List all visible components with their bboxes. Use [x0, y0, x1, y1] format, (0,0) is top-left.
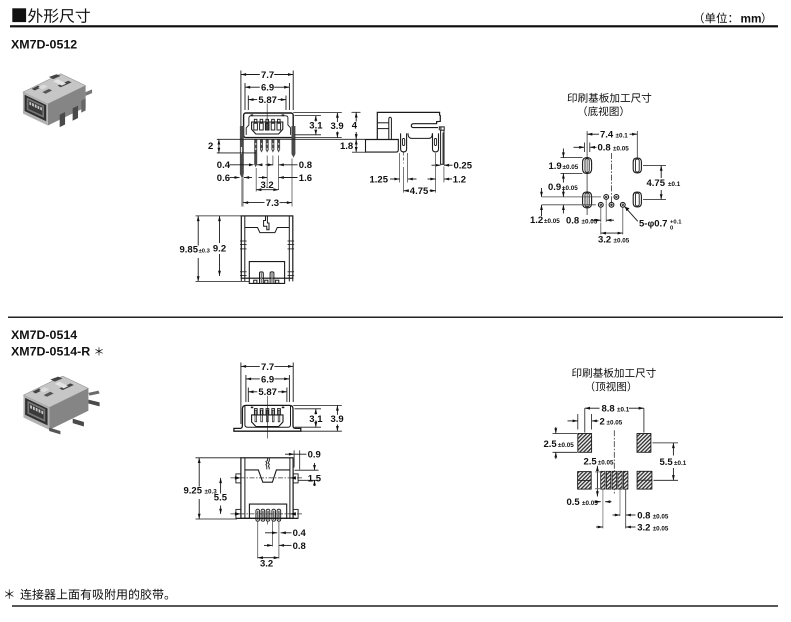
- svg-text:2: 2: [208, 141, 213, 152]
- svg-text:±0.05: ±0.05: [598, 460, 614, 467]
- svg-text:±0.05: ±0.05: [614, 238, 630, 245]
- svg-text:±0.1: ±0.1: [617, 407, 630, 414]
- svg-text:±0.3: ±0.3: [199, 249, 211, 255]
- svg-text:7.7: 7.7: [261, 362, 274, 373]
- svg-text:8.8: 8.8: [602, 404, 615, 415]
- svg-text:9.2: 9.2: [213, 243, 226, 254]
- svg-text:7.7: 7.7: [261, 70, 274, 81]
- svg-text:4.75: 4.75: [410, 186, 429, 197]
- svg-text:XM7D-0514: XM7D-0514: [11, 328, 77, 342]
- svg-text:±0.1: ±0.1: [616, 133, 629, 140]
- svg-text:1.8: 1.8: [340, 141, 353, 152]
- svg-text:5-φ0.7: 5-φ0.7: [639, 218, 667, 229]
- svg-text:3.1: 3.1: [309, 414, 323, 425]
- svg-text:±0.1: ±0.1: [668, 181, 681, 188]
- svg-text:3.2: 3.2: [261, 180, 274, 191]
- svg-text:0.4: 0.4: [217, 160, 231, 171]
- svg-text:2.5: 2.5: [544, 439, 558, 450]
- svg-text:3.9: 3.9: [331, 414, 344, 425]
- svg-text:3.1: 3.1: [309, 121, 323, 132]
- svg-text:1.2: 1.2: [530, 215, 543, 226]
- svg-text:0.9: 0.9: [548, 182, 561, 193]
- svg-text:0.8: 0.8: [293, 541, 306, 552]
- svg-text:5.5: 5.5: [660, 457, 674, 468]
- svg-text:3.2: 3.2: [598, 235, 611, 246]
- svg-text:±0.05: ±0.05: [544, 218, 560, 225]
- svg-text:0: 0: [670, 226, 673, 232]
- svg-text:0.9: 0.9: [308, 450, 321, 461]
- svg-text:4: 4: [352, 121, 358, 132]
- svg-text:±0.05: ±0.05: [607, 419, 623, 426]
- svg-text:5.87: 5.87: [258, 95, 277, 106]
- svg-text:2: 2: [600, 416, 605, 427]
- svg-text:0.8: 0.8: [637, 510, 650, 521]
- svg-text:7.3: 7.3: [266, 198, 279, 209]
- svg-text:±0.05: ±0.05: [563, 164, 579, 171]
- svg-text:9.25: 9.25: [184, 486, 203, 497]
- svg-text:±0.05: ±0.05: [653, 513, 669, 520]
- svg-text:2.5: 2.5: [584, 457, 598, 468]
- svg-text:4.75: 4.75: [647, 178, 666, 189]
- svg-text:0.8: 0.8: [566, 216, 579, 227]
- svg-text:0.4: 0.4: [293, 528, 307, 539]
- svg-text:6.9: 6.9: [261, 83, 274, 94]
- svg-text:±0.05: ±0.05: [562, 185, 578, 192]
- svg-text:0.5: 0.5: [567, 497, 581, 508]
- svg-text:1.5: 1.5: [308, 473, 322, 484]
- svg-text:3.9: 3.9: [331, 121, 344, 132]
- svg-text:0.6: 0.6: [217, 173, 230, 184]
- svg-text:0.8: 0.8: [299, 160, 312, 171]
- svg-text:3.2: 3.2: [637, 522, 650, 533]
- svg-text:0.25: 0.25: [454, 161, 473, 172]
- svg-text:±0.1: ±0.1: [674, 460, 687, 467]
- svg-text:7.4: 7.4: [600, 130, 614, 141]
- svg-text:5.5: 5.5: [214, 493, 228, 504]
- svg-text:0.8: 0.8: [598, 143, 611, 154]
- svg-text:±0.05: ±0.05: [582, 500, 598, 507]
- svg-text:6.9: 6.9: [261, 374, 274, 385]
- svg-text:±0.05: ±0.05: [613, 146, 629, 153]
- svg-text:XM7D-0512: XM7D-0512: [11, 38, 77, 52]
- svg-text:±0.05: ±0.05: [653, 525, 669, 532]
- svg-text:1.9: 1.9: [549, 161, 562, 172]
- svg-text:9.85: 9.85: [180, 245, 199, 256]
- svg-text:±0.05: ±0.05: [582, 219, 598, 226]
- svg-text:1.25: 1.25: [370, 174, 389, 185]
- svg-text:1.2: 1.2: [453, 174, 466, 185]
- svg-text:1.6: 1.6: [299, 173, 312, 184]
- svg-text:±0.05: ±0.05: [558, 442, 574, 449]
- svg-text:mm: mm: [741, 11, 762, 25]
- svg-text:XM7D-0514-R: XM7D-0514-R: [11, 345, 90, 359]
- svg-text:3.2: 3.2: [260, 559, 273, 570]
